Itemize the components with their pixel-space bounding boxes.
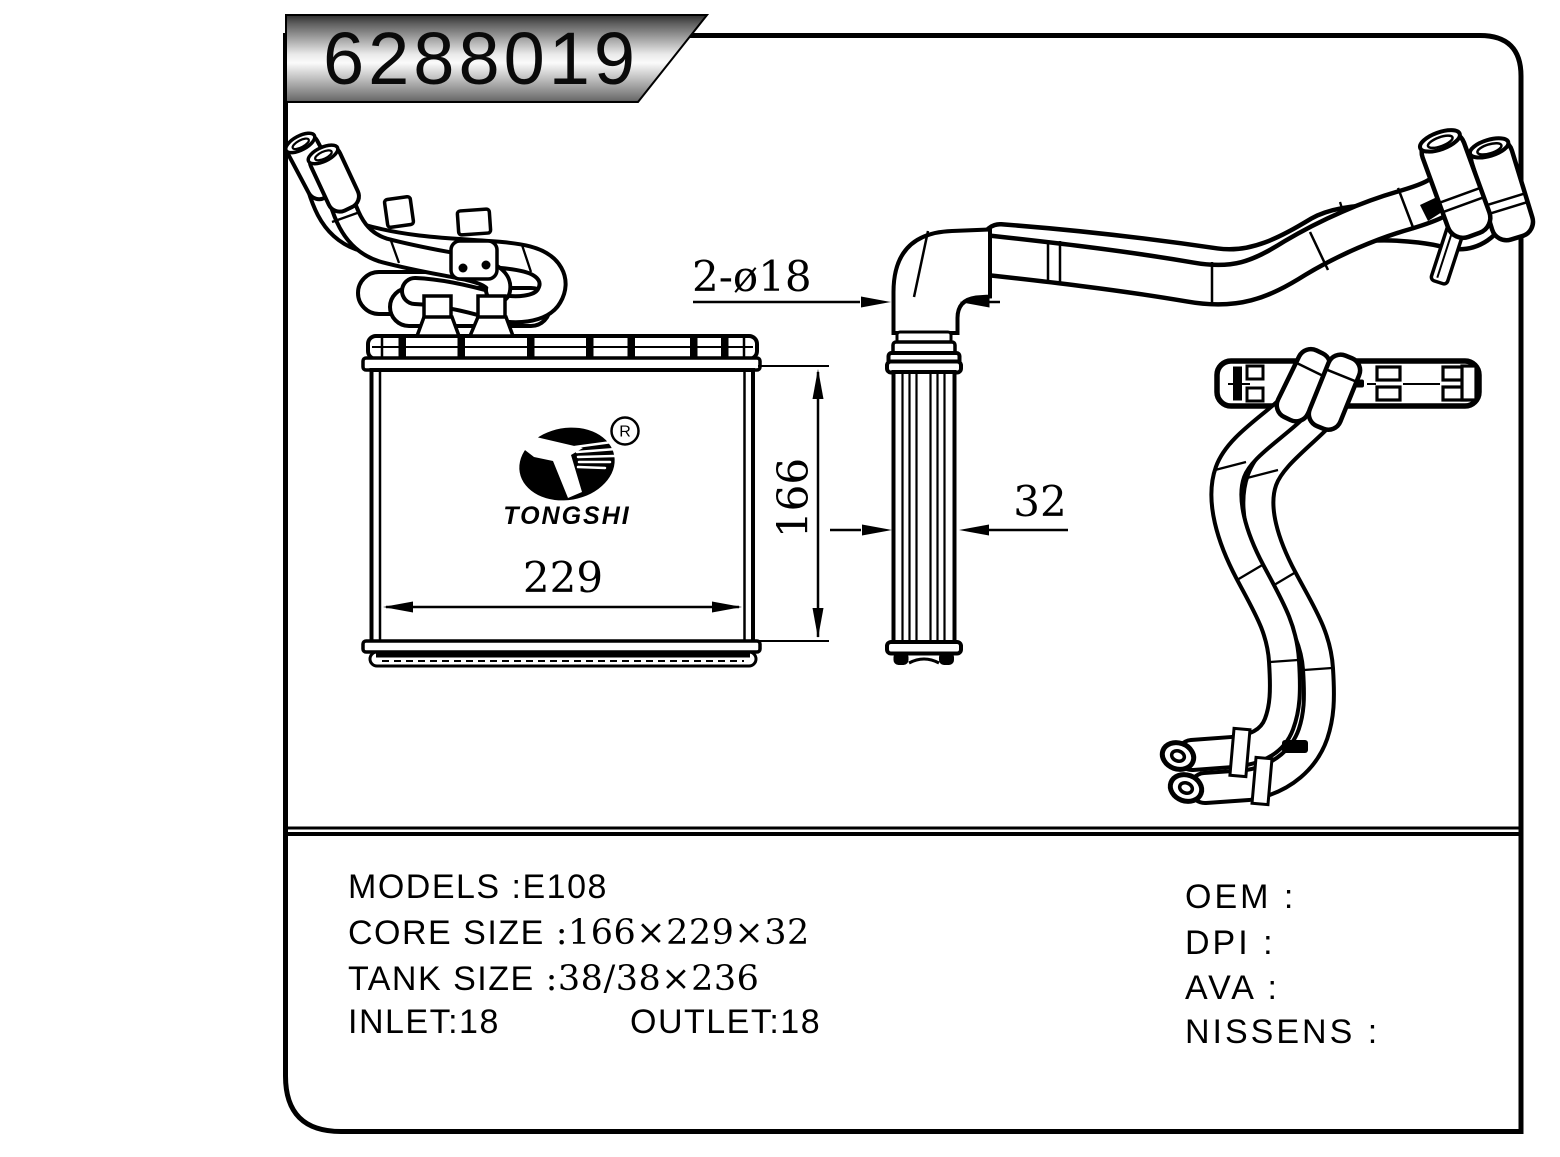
spec-dpi: DPI : xyxy=(1185,926,1276,960)
spec-outlet: OUTLET:18 xyxy=(630,1005,821,1039)
spec-models-value: :E108 xyxy=(512,868,608,906)
spec-tank-size: TANK SIZE :38/38×236 xyxy=(348,962,759,997)
return-hoses xyxy=(1159,345,1364,806)
dimension-label-width: 229 xyxy=(498,557,628,599)
inlet-pipe-assembly xyxy=(283,129,553,336)
technical-drawing: R xyxy=(0,0,1560,1157)
spec-tank-size-label: TANK SIZE xyxy=(348,960,535,998)
mounting-plate xyxy=(451,241,497,279)
dimension-label-height: 166 xyxy=(773,441,815,556)
core-front-view xyxy=(363,336,760,666)
dimension-label-depth: 32 xyxy=(998,481,1082,523)
dimension-label-ports: 2-ø18 xyxy=(692,256,812,298)
spec-oem: OEM : xyxy=(1185,880,1296,914)
supply-hoses xyxy=(958,125,1537,306)
hose-clamp-clip xyxy=(1282,740,1308,753)
spec-inlet: INLET:18 xyxy=(348,1005,500,1039)
drawing-sheet: R 6288019 2-ø18 166 229 32 TONGSHI MODEL… xyxy=(0,0,1560,1157)
core-side-view xyxy=(887,230,990,666)
spec-core-size-value: :166×229×32 xyxy=(556,913,810,953)
section-divider xyxy=(288,827,1519,830)
registered-mark-letter: R xyxy=(619,424,631,441)
screw-dot xyxy=(482,261,491,270)
spec-models-label: MODELS xyxy=(348,868,501,906)
spec-nissens: NISSENS : xyxy=(1185,1015,1380,1049)
spec-core-size-label: CORE SIZE xyxy=(348,914,545,952)
spec-core-size: CORE SIZE :166×229×32 xyxy=(348,916,810,951)
spec-models: MODELS :E108 xyxy=(348,870,608,904)
spec-tank-size-value: :38/38×236 xyxy=(546,959,760,999)
screw-dot xyxy=(459,264,468,273)
spec-ava: AVA : xyxy=(1185,971,1280,1005)
part-number: 6288019 xyxy=(323,22,639,96)
brand-name: TONGSHI xyxy=(500,504,634,529)
